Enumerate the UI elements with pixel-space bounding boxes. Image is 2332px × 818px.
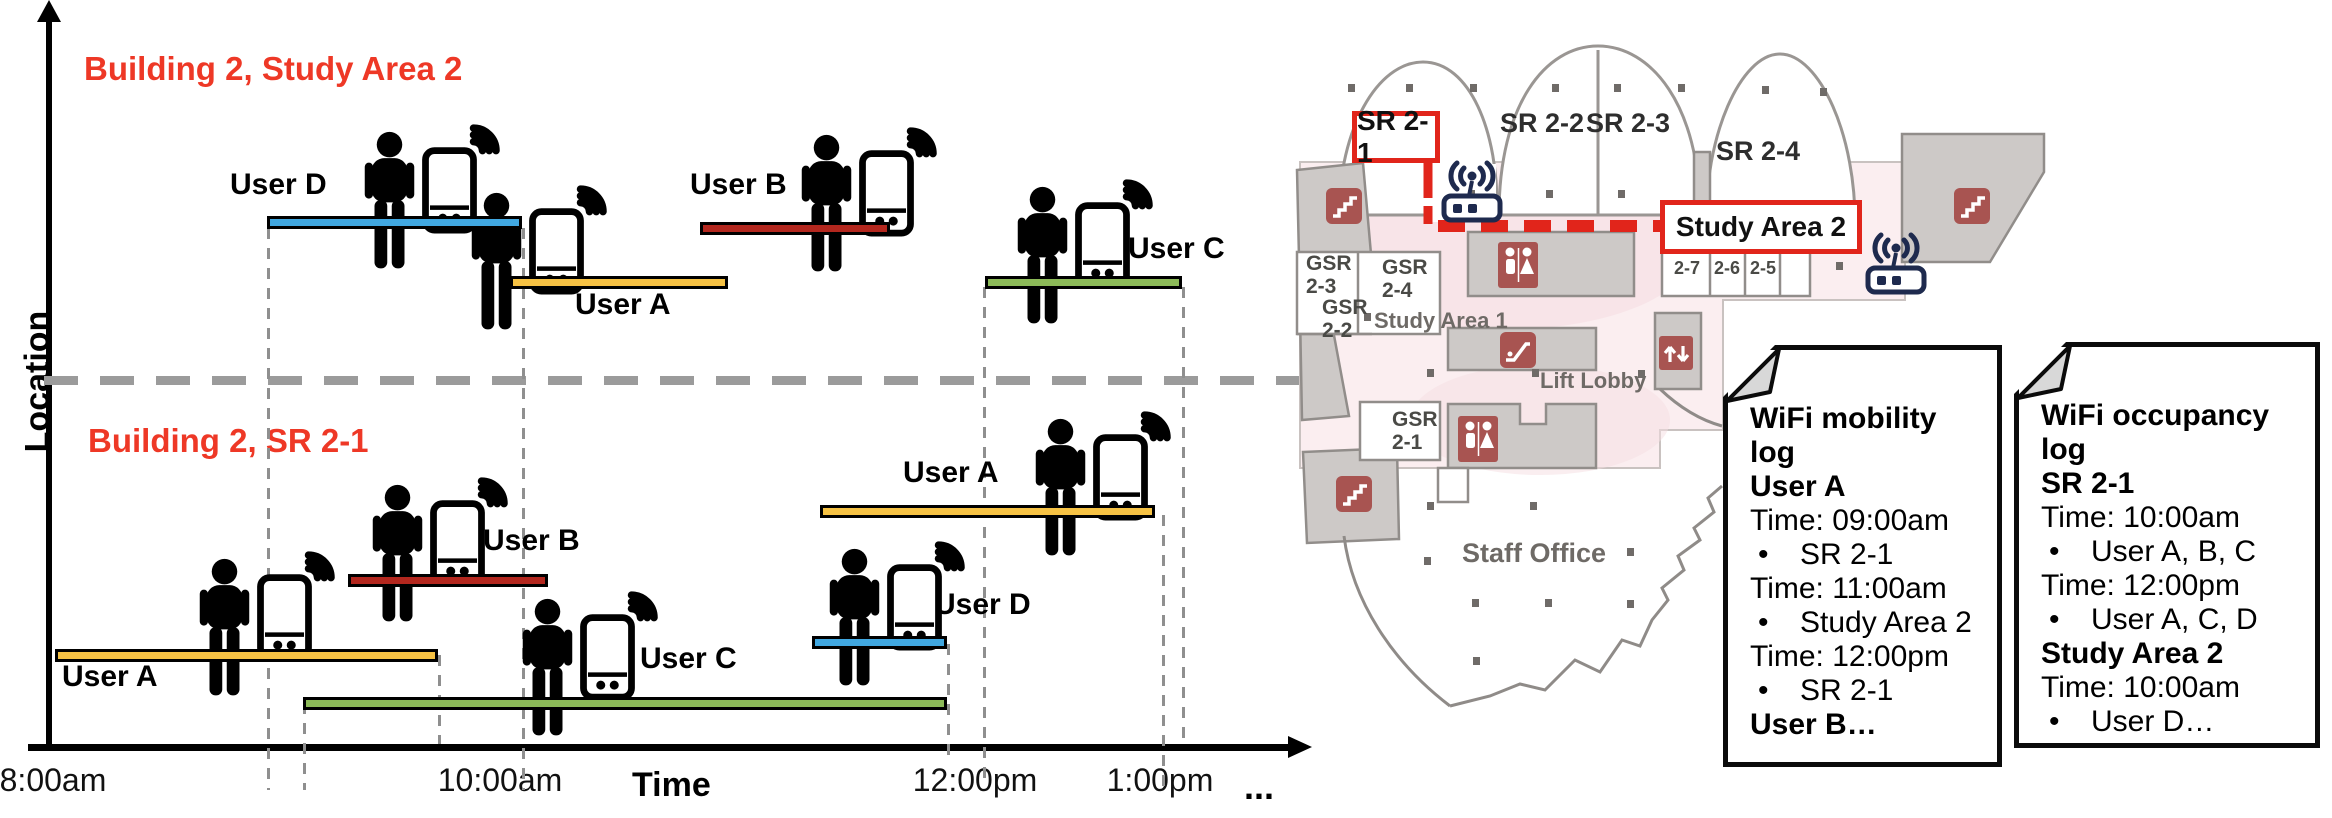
room-label-sr-2-2: SR 2-2: [1500, 108, 1584, 139]
room-label-box-sr-2-1: SR 2-1: [1352, 111, 1440, 163]
log-line: Study Area 2: [2041, 637, 2307, 671]
log-line: Time: 10:00am: [2041, 501, 2307, 535]
area-label-study-area-1: Study Area 1: [1374, 308, 1508, 334]
room-number-2-6: 2-6: [1714, 258, 1740, 279]
area-label-lift-lobby: Lift Lobby: [1540, 368, 1646, 394]
log-line: •User D…: [2041, 705, 2307, 739]
room-number-2-7: 2-7: [1674, 258, 1700, 279]
log-line: Time: 12:00pm: [2041, 569, 2307, 603]
room-number-2-5: 2-5: [1750, 258, 1776, 279]
stairs-icon: [1954, 188, 1990, 224]
room-label-gsr-2-4: GSR 2-4: [1382, 256, 1446, 302]
log-line: Time: 10:00am: [2041, 671, 2307, 705]
wifi-mobility-log-card: WiFi mobility log User A Time: 09:00am •…: [1723, 345, 2002, 767]
log-line: User A: [1750, 470, 1989, 504]
stairs-icon: [1336, 476, 1372, 512]
restroom-icon: [1498, 242, 1538, 288]
restroom-icon: [1458, 416, 1498, 462]
room-label-gsr-2-3: GSR 2-3: [1306, 252, 1370, 298]
log-line: •User A, C, D: [2041, 603, 2307, 637]
log-line: User B…: [1750, 708, 1989, 742]
log-line: •SR 2-1: [1750, 674, 1989, 708]
log-line: •SR 2-1: [1750, 538, 1989, 572]
log-line: SR 2-1: [2041, 467, 2307, 501]
room-label-sr-2-3: SR 2-3: [1586, 108, 1670, 139]
stairs-icon: [1326, 188, 1362, 224]
log-line: WiFi occupancy log: [2041, 399, 2307, 467]
log-line: •Study Area 2: [1750, 606, 1989, 640]
log-line: Time: 09:00am: [1750, 504, 1989, 538]
figure-canvas: Location Time 8:00am 10:00am 12:00pm 1:0…: [0, 0, 2332, 818]
room-label-box-study-area-2: Study Area 2: [1660, 200, 1862, 254]
log-line: Time: 11:00am: [1750, 572, 1989, 606]
room-label-gsr-2-1: GSR 2-1: [1392, 408, 1456, 454]
escalator-icon: [1500, 332, 1536, 368]
mobility-log-lines: WiFi mobility log User A Time: 09:00am •…: [1750, 402, 1989, 742]
area-label-staff-office: Staff Office: [1462, 538, 1606, 569]
log-line: Time: 12:00pm: [1750, 640, 1989, 674]
room-label-sr-2-4: SR 2-4: [1716, 136, 1800, 167]
occupancy-log-lines: WiFi occupancy log SR 2-1 Time: 10:00am …: [2041, 399, 2307, 739]
wifi-occupancy-log-card: WiFi occupancy log SR 2-1 Time: 10:00am …: [2014, 342, 2320, 748]
lift-icon: [1659, 336, 1693, 370]
log-line: •User A, B, C: [2041, 535, 2307, 569]
log-line: WiFi mobility log: [1750, 402, 1989, 470]
